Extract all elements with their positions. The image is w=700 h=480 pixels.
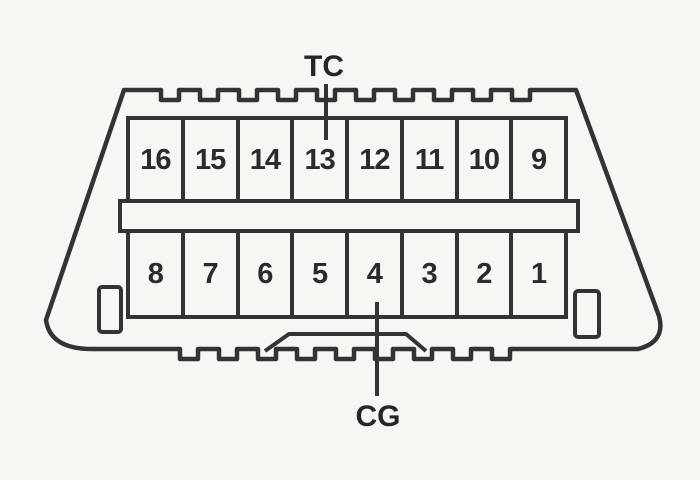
pin-6: 6	[240, 233, 295, 315]
pin-15-label: 15	[195, 144, 225, 177]
pin-row-top: 16 15 14 13 12 11 10 9	[126, 116, 568, 204]
pin-16-label: 16	[140, 144, 170, 177]
pin-7-label: 7	[203, 258, 218, 291]
pin-11-label: 11	[415, 144, 444, 177]
pin-16: 16	[130, 120, 185, 200]
keying-slot-left	[99, 287, 121, 332]
pin-10: 10	[459, 120, 514, 200]
pin-12: 12	[349, 120, 404, 200]
pin-1-label: 1	[531, 258, 546, 291]
tc-label: TC	[289, 50, 359, 84]
pin-4: 4	[349, 233, 404, 315]
pin-14-label: 14	[250, 144, 280, 177]
pin-2: 2	[459, 233, 514, 315]
cg-label: CG	[343, 400, 413, 434]
pin-3: 3	[404, 233, 459, 315]
pin-11: 11	[404, 120, 459, 200]
center-divider-bar	[118, 199, 580, 233]
pin-9-label: 9	[531, 144, 546, 177]
pin-2-label: 2	[476, 258, 491, 291]
obd-connector-pinout-diagram: 16 15 14 13 12 11 10 9 8 7 6 5 4 3 2 1 T…	[0, 0, 700, 480]
pin-14: 14	[240, 120, 295, 200]
pin-3-label: 3	[422, 258, 437, 291]
pin-8-label: 8	[148, 258, 163, 291]
keying-slot-right	[575, 291, 599, 337]
pin-5-label: 5	[312, 258, 327, 291]
pin-9: 9	[513, 120, 564, 200]
pin-13: 13	[294, 120, 349, 200]
pin-15: 15	[185, 120, 240, 200]
pin-6-label: 6	[257, 258, 272, 291]
pin-10-label: 10	[469, 144, 499, 177]
alignment-tab	[265, 334, 426, 351]
pin-12-label: 12	[359, 144, 389, 177]
pin-5: 5	[294, 233, 349, 315]
pin-13-label: 13	[304, 144, 334, 177]
pin-8: 8	[130, 233, 185, 315]
pin-4-label: 4	[367, 258, 382, 291]
pin-7: 7	[185, 233, 240, 315]
pin-1: 1	[513, 233, 564, 315]
pin-row-bottom: 8 7 6 5 4 3 2 1	[126, 229, 568, 319]
